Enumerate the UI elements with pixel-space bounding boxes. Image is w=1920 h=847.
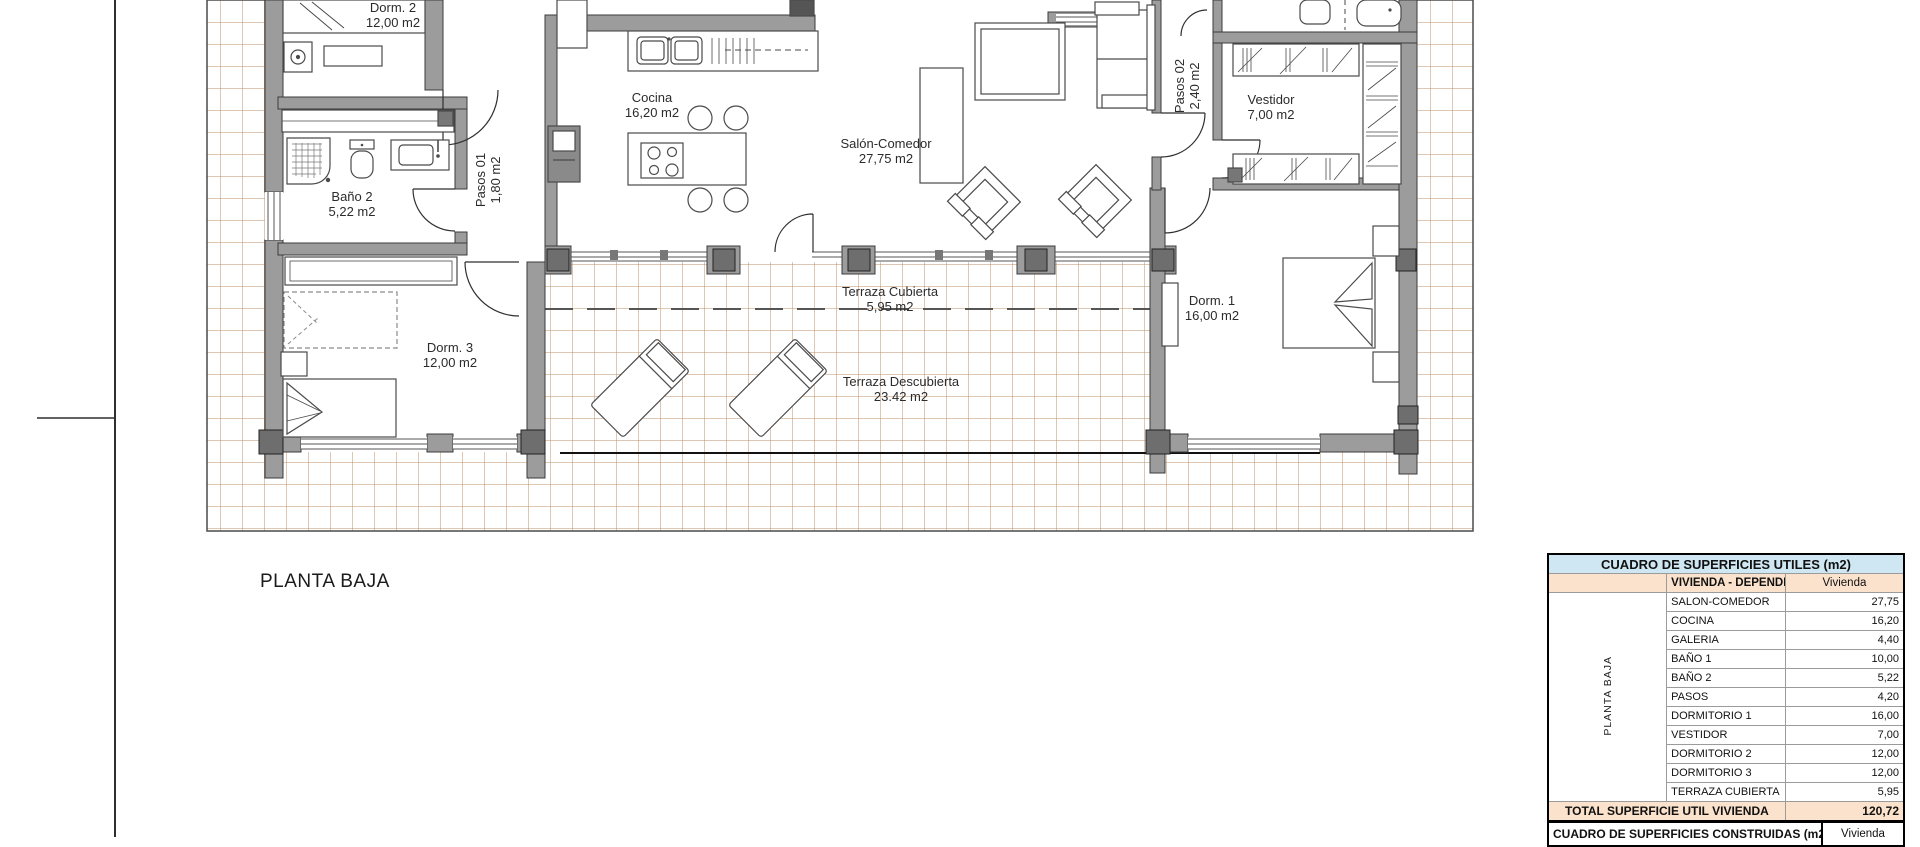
room-label-pasos02: Pasos 022,40 m2 xyxy=(1172,59,1202,113)
room-label-cocina: Cocina16,20 m2 xyxy=(625,90,679,120)
table-cell-value: 16,20 xyxy=(1785,612,1904,631)
table-cell-name: VESTIDOR xyxy=(1667,726,1786,745)
table-cell-value: 4,40 xyxy=(1785,631,1904,650)
room-label-terraza-descubierta: Terraza Descubierta23.42 m2 xyxy=(843,374,959,404)
built-surfaces-table: CUADRO DE SUPERFICIES CONSTRUIDAS (m2) V… xyxy=(1547,821,1905,847)
sheet-frame xyxy=(37,0,115,837)
sofa-icon xyxy=(1095,2,1155,110)
table-cell-value: 5,95 xyxy=(1785,783,1904,802)
table-row: PLANTA BAJASALON-COMEDOR27,75 xyxy=(1548,593,1904,612)
table-cell-name: COCINA xyxy=(1667,612,1786,631)
table-cell-name: GALERIA xyxy=(1667,631,1786,650)
room-label-pasos01: Pasos 011,80 m2 xyxy=(473,153,503,207)
kitchen-island-icon xyxy=(628,133,746,185)
closet-icon xyxy=(282,110,454,132)
table-cell-value: 27,75 xyxy=(1785,593,1904,612)
table-cell-name: DORMITORIO 3 xyxy=(1667,764,1786,783)
table-cell-name: BAÑO 2 xyxy=(1667,669,1786,688)
table-cell-name: PASOS xyxy=(1667,688,1786,707)
table-cell-value: 16,00 xyxy=(1785,707,1904,726)
plan-caption: PLANTA BAJA xyxy=(260,571,390,593)
room-label-vestidor: Vestidor7,00 m2 xyxy=(1248,92,1295,122)
room-label-dorm2: Dorm. 212,00 m2 xyxy=(366,0,420,30)
table-side-label: PLANTA BAJA xyxy=(1548,593,1667,802)
table-cell-value: 5,22 xyxy=(1785,669,1904,688)
surfaces-table-total-value: 120,72 xyxy=(1785,802,1904,822)
coffee-table-icon xyxy=(975,23,1065,100)
table-cell-name: BAÑO 1 xyxy=(1667,650,1786,669)
table-cell-value: 10,00 xyxy=(1785,650,1904,669)
appliance-icon xyxy=(790,0,814,16)
surfaces-table-header-label: VIVIENDA - DEPENDENCIAS xyxy=(1667,574,1786,593)
table-cell-name: SALON-COMEDOR xyxy=(1667,593,1786,612)
room-label-terraza-cubierta: Terraza Cubierta5,95 m2 xyxy=(842,284,938,314)
table-cell-value: 12,00 xyxy=(1785,764,1904,783)
built-table-value-header: Vivienda xyxy=(1822,822,1904,846)
table-cell-name: DORMITORIO 2 xyxy=(1667,745,1786,764)
surfaces-table-header-value: Vivienda xyxy=(1785,574,1904,593)
dresser-icon xyxy=(1162,283,1178,346)
surfaces-table: CUADRO DE SUPERFICIES UTILES (m2) VIVIEN… xyxy=(1547,553,1905,822)
shower-icon xyxy=(287,138,330,184)
table-cell-value: 4,20 xyxy=(1785,688,1904,707)
sink-icon xyxy=(391,140,449,170)
room-label-bano2: Baño 25,22 m2 xyxy=(329,189,376,219)
table-cell-name: TERRAZA CUBIERTA xyxy=(1667,783,1786,802)
surfaces-table-header-spacer xyxy=(1548,574,1667,593)
toilet-icon xyxy=(350,140,374,178)
room-label-salon: Salón-Comedor27,75 m2 xyxy=(840,136,931,166)
surfaces-table-title: CUADRO DE SUPERFICIES UTILES (m2) xyxy=(1548,554,1904,574)
table-cell-name: DORMITORIO 1 xyxy=(1667,707,1786,726)
table-cell-value: 12,00 xyxy=(1785,745,1904,764)
surfaces-rows: PLANTA BAJASALON-COMEDOR27,75COCINA16,20… xyxy=(1548,593,1904,802)
surfaces-table-total-label: TOTAL SUPERFICIE UTIL VIVIENDA xyxy=(1548,802,1785,822)
table-cell-value: 7,00 xyxy=(1785,726,1904,745)
room-label-dorm3: Dorm. 312,00 m2 xyxy=(423,340,477,370)
wardrobe-icon xyxy=(285,257,457,285)
room-label-dorm1: Dorm. 116,00 m2 xyxy=(1185,293,1239,323)
built-table-title: CUADRO DE SUPERFICIES CONSTRUIDAS (m2) xyxy=(1548,822,1822,846)
